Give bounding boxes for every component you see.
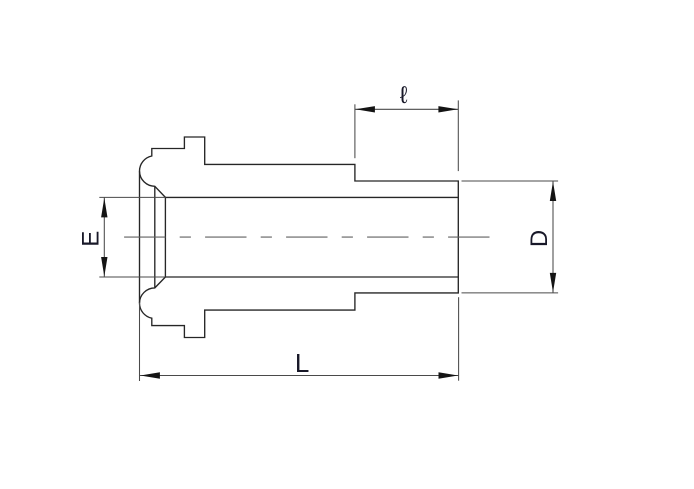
svg-text:L: L — [295, 348, 309, 378]
svg-text:D: D — [526, 230, 553, 247]
svg-text:ℓ: ℓ — [400, 82, 408, 109]
svg-text:E: E — [78, 231, 105, 247]
